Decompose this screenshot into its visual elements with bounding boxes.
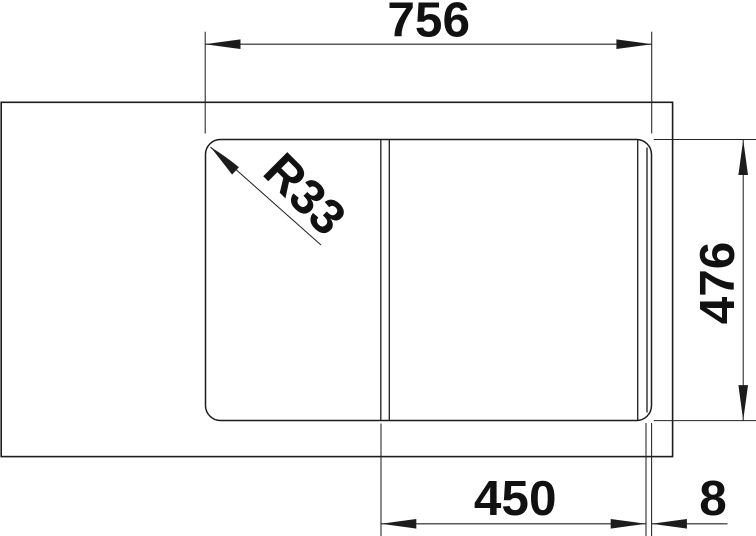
svg-text:756: 756 xyxy=(387,0,470,48)
svg-text:476: 476 xyxy=(690,242,745,325)
svg-text:8: 8 xyxy=(699,471,727,526)
svg-text:450: 450 xyxy=(474,471,557,526)
